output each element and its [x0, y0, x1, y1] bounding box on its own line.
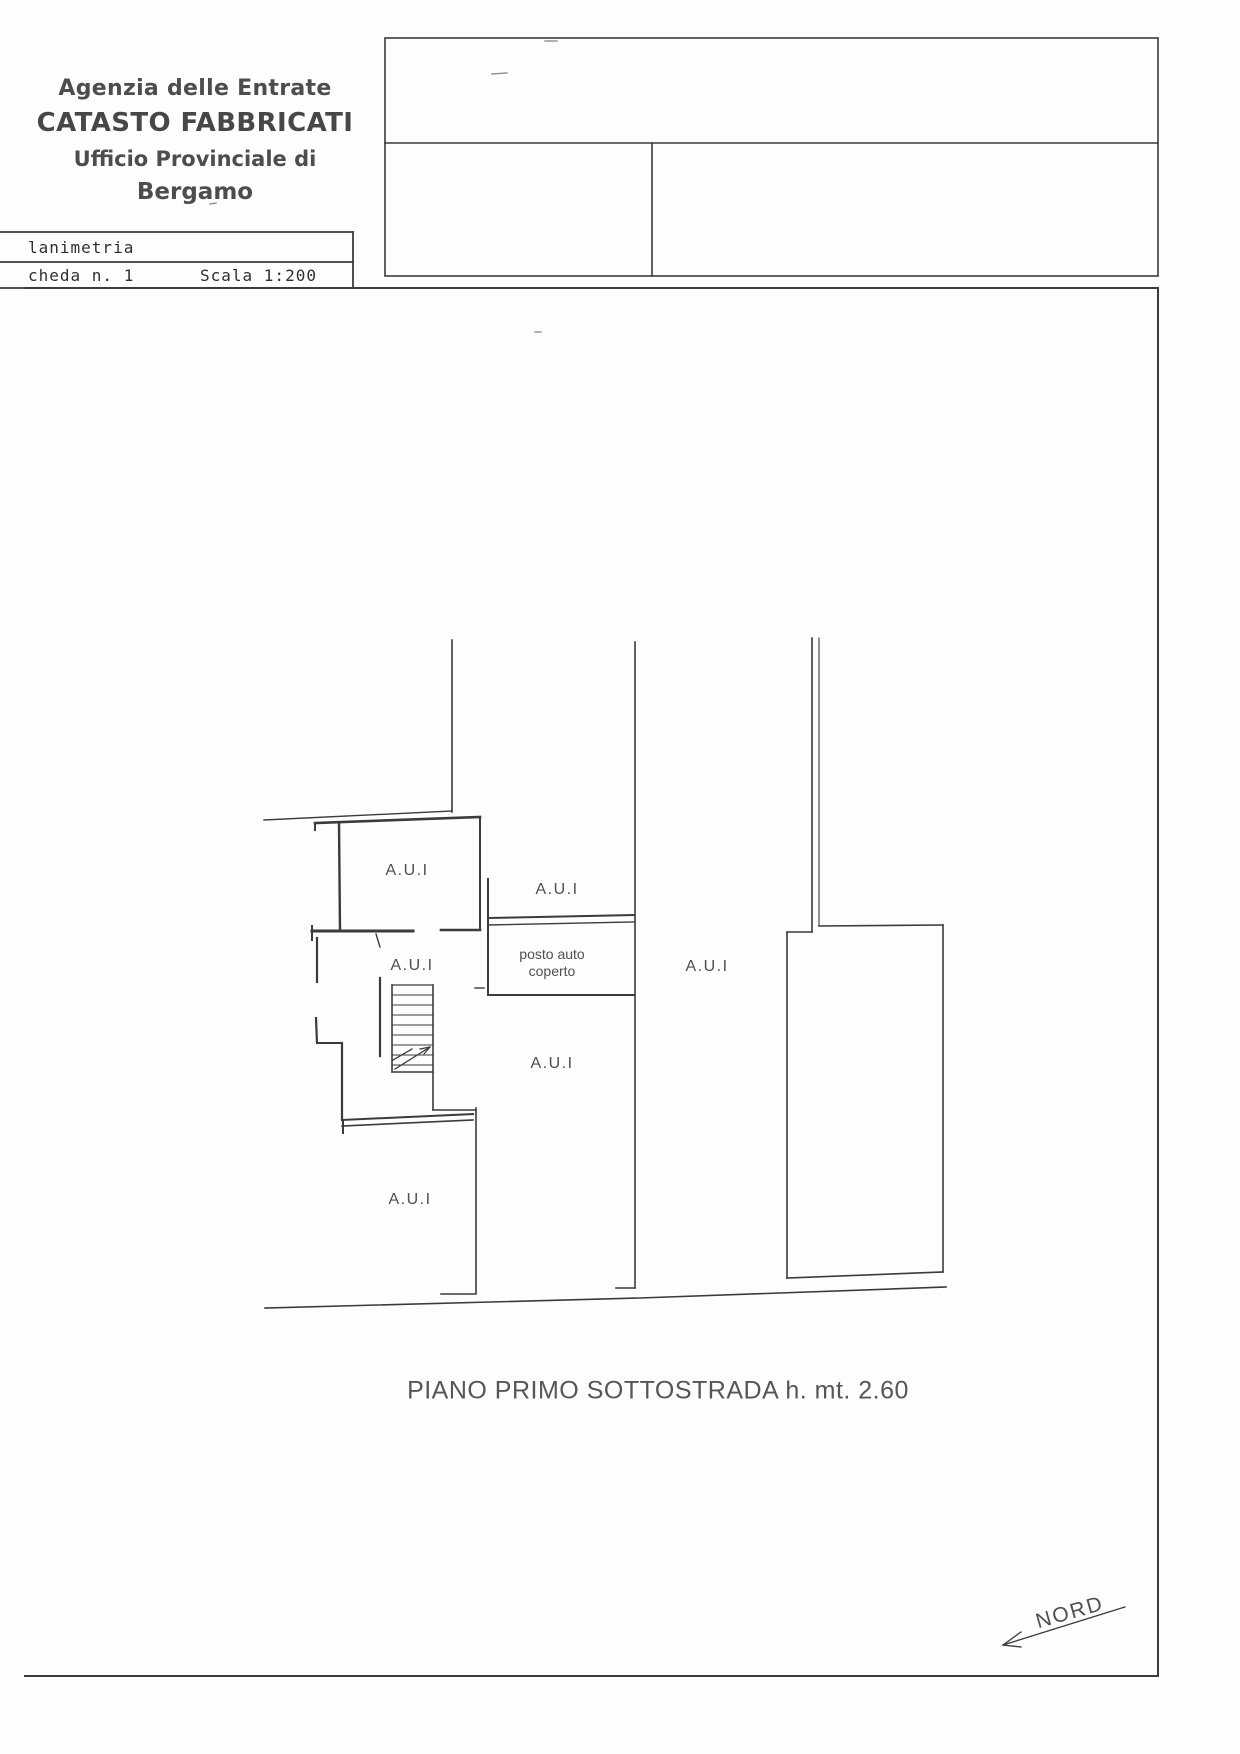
plan-caption: PIANO PRIMO SOTTOSTRADA h. mt. 2.60 — [407, 1377, 909, 1406]
parking-label-line2: coperto — [519, 963, 584, 980]
parking-label: posto auto coperto — [519, 946, 584, 980]
parking-label-line1: posto auto — [519, 946, 584, 963]
office-city: Bergamo — [20, 179, 370, 205]
floor-plan-walls — [264, 638, 946, 1308]
room-label: A.U.I — [530, 1055, 573, 1073]
drawing-frame — [25, 288, 1158, 1676]
scale-label: Scala 1:200 — [200, 266, 317, 285]
room-label: A.U.I — [390, 957, 433, 975]
scanned-cadastral-sheet: Agenzia delle Entrate CATASTO FABBRICATI… — [0, 0, 1240, 1754]
provincial-office-label: Ufficio Provinciale di — [20, 147, 370, 171]
staircase — [380, 978, 433, 1110]
agency-name: Agenzia delle Entrate — [20, 76, 370, 101]
room-label: A.U.I — [685, 958, 728, 976]
letterhead: Agenzia delle Entrate CATASTO FABBRICATI… — [20, 76, 370, 205]
sheet-type-label: lanimetria — [28, 238, 134, 257]
registry-name: CATASTO FABBRICATI — [20, 108, 370, 138]
room-label: A.U.I — [385, 862, 428, 880]
room-label: A.U.I — [535, 881, 578, 899]
room-label: A.U.I — [388, 1191, 431, 1209]
floor-plan-drawing — [0, 0, 1240, 1754]
sheet-number-label: cheda n. 1 — [28, 266, 134, 285]
